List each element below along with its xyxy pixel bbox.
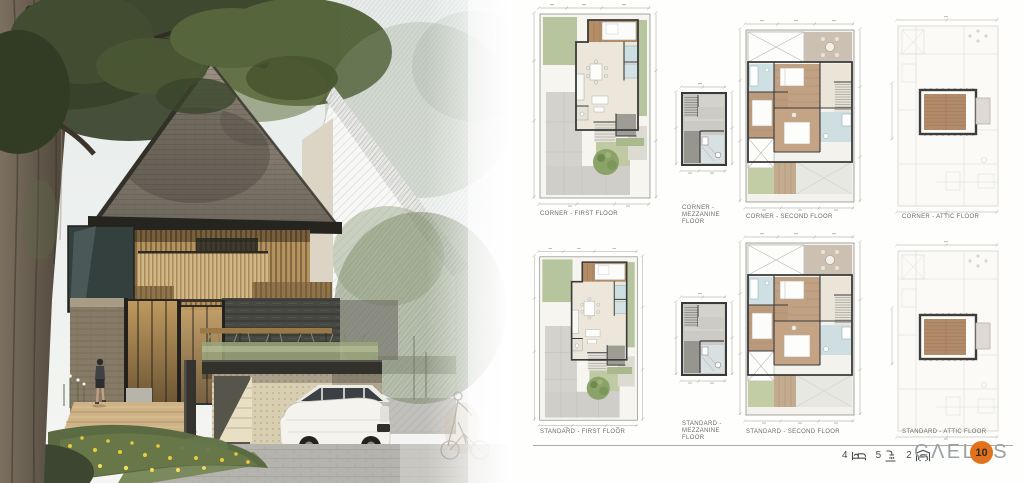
plan-caption: STANDARD - ATTIC FLOOR	[902, 429, 986, 436]
plan-corner-mezzanine-floor	[670, 81, 738, 177]
plan-corner-attic-floor	[886, 14, 1010, 218]
presentation-board: CORNER - FIRST FLOOR CORNER - MEZZANINE …	[0, 0, 1024, 483]
bedroom-count-value: 4	[842, 450, 848, 461]
plan-standard-first-floor	[529, 244, 648, 433]
plan-standard-mezzanine-floor	[670, 291, 738, 387]
plan-corner-second-floor	[734, 18, 866, 214]
carport-stairs	[214, 376, 252, 446]
wood-rail	[200, 328, 332, 334]
bathroom-count: 5	[876, 449, 898, 462]
plan-caption: CORNER - ATTIC FLOOR	[902, 214, 979, 221]
plan-caption: STANDARD - MEZZANINE FLOOR	[682, 421, 740, 442]
floor-plans-panel: CORNER - FIRST FLOOR CORNER - MEZZANINE …	[512, 0, 1024, 483]
plan-caption: CORNER - FIRST FLOOR	[540, 211, 618, 218]
plan-caption: STANDARD - FIRST FLOOR	[540, 429, 625, 436]
bathroom-count-value: 5	[876, 450, 882, 461]
plan-caption: CORNER - SECOND FLOOR	[746, 214, 833, 221]
shower-icon	[884, 449, 897, 462]
unit-number-badge: 10	[970, 441, 993, 464]
plan-standard-attic-floor	[886, 239, 1010, 443]
plan-standard-second-floor	[734, 231, 866, 427]
carport-canopy	[202, 360, 382, 374]
plan-corner-first-floor	[528, 2, 662, 210]
exterior-render-scene	[0, 0, 512, 483]
bed-icon	[851, 449, 867, 462]
garage-count-value: 2	[906, 450, 912, 461]
plan-caption: CORNER - MEZZANINE FLOOR	[682, 205, 740, 226]
bedroom-count: 4	[842, 449, 867, 462]
brand-logo: CΛELUS	[914, 441, 1009, 464]
exterior-render	[0, 0, 512, 483]
plan-caption: STANDARD - SECOND FLOOR	[746, 429, 840, 436]
